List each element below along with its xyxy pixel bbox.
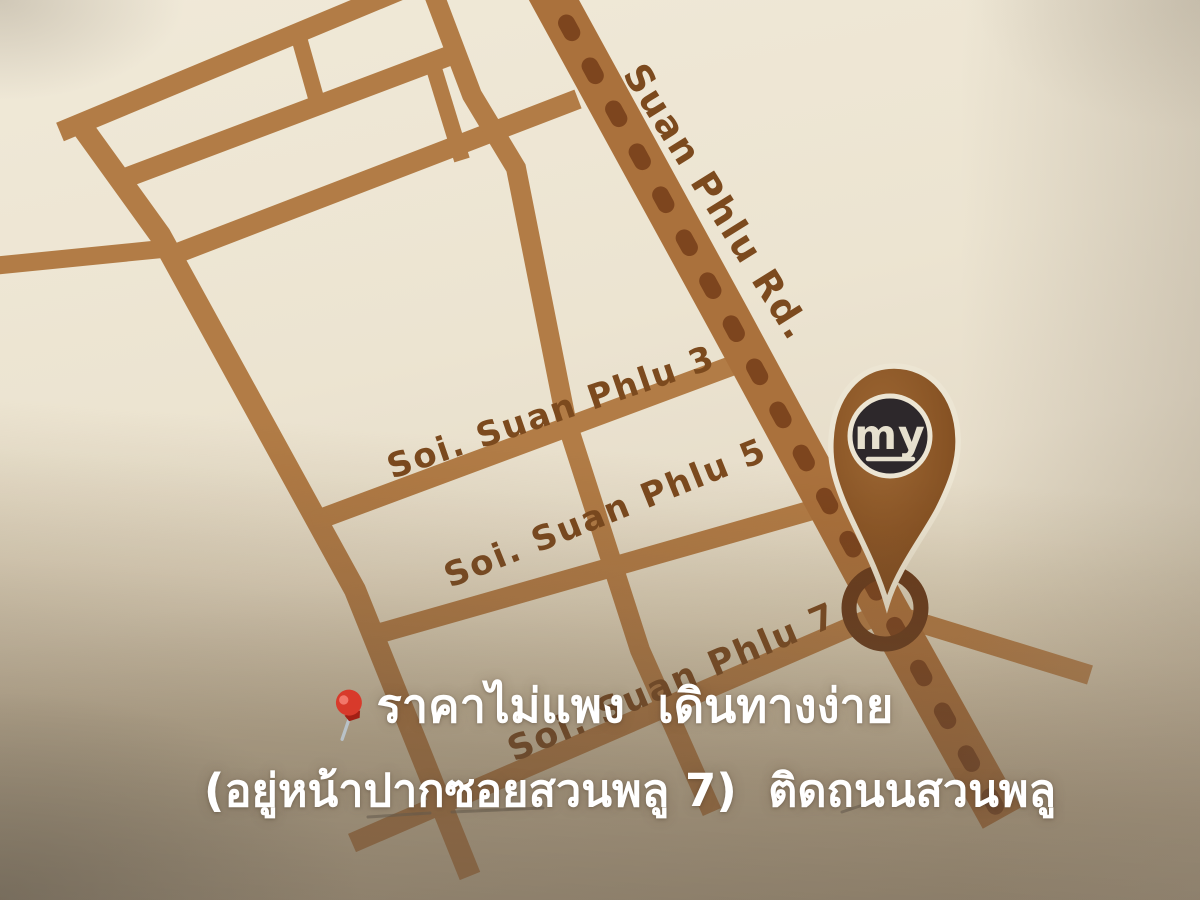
caption-line-1: ราคาไม่แพง เดินทางง่าย (0, 668, 1200, 744)
pin-logo-text: my (854, 411, 925, 459)
street-lattice-left-stub (0, 248, 172, 266)
map-photo: Suan Phlu Rd. Soi. Suan Phlu 3 Soi. Suan… (0, 0, 1200, 900)
pushpin-icon (321, 679, 381, 743)
caption-line-1-text: ราคาไม่แพง เดินทางง่าย (377, 668, 894, 743)
street-lattice-cross-stub (298, 34, 320, 112)
street-lattice-top (60, 0, 420, 132)
caption-line-2: (อยู่หน้าปากซอยสวนพลู 7) ติดถนนสวนพลู (0, 754, 1200, 826)
